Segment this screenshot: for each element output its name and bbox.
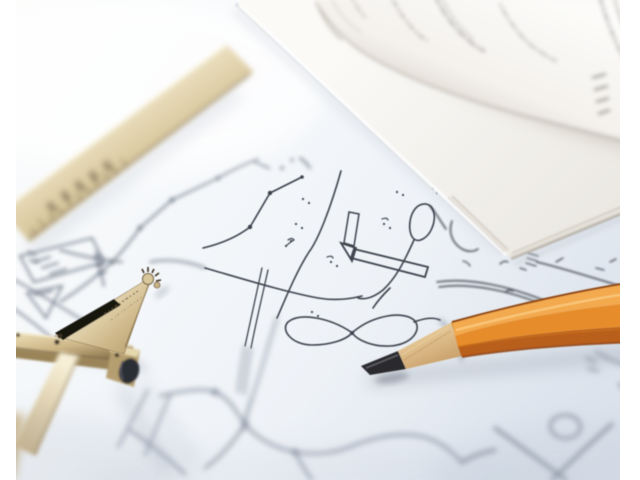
frame-left-margin [0, 0, 16, 480]
head-rivet [58, 334, 63, 339]
crossbar-screw [54, 339, 59, 344]
photo-desk-sketch-scene: Close-up photograph of hand-drawn techni… [0, 0, 640, 480]
photo-canvas: Close-up photograph of hand-drawn techni… [0, 0, 640, 480]
frame-right-margin [620, 0, 640, 480]
block-screw [115, 353, 119, 357]
